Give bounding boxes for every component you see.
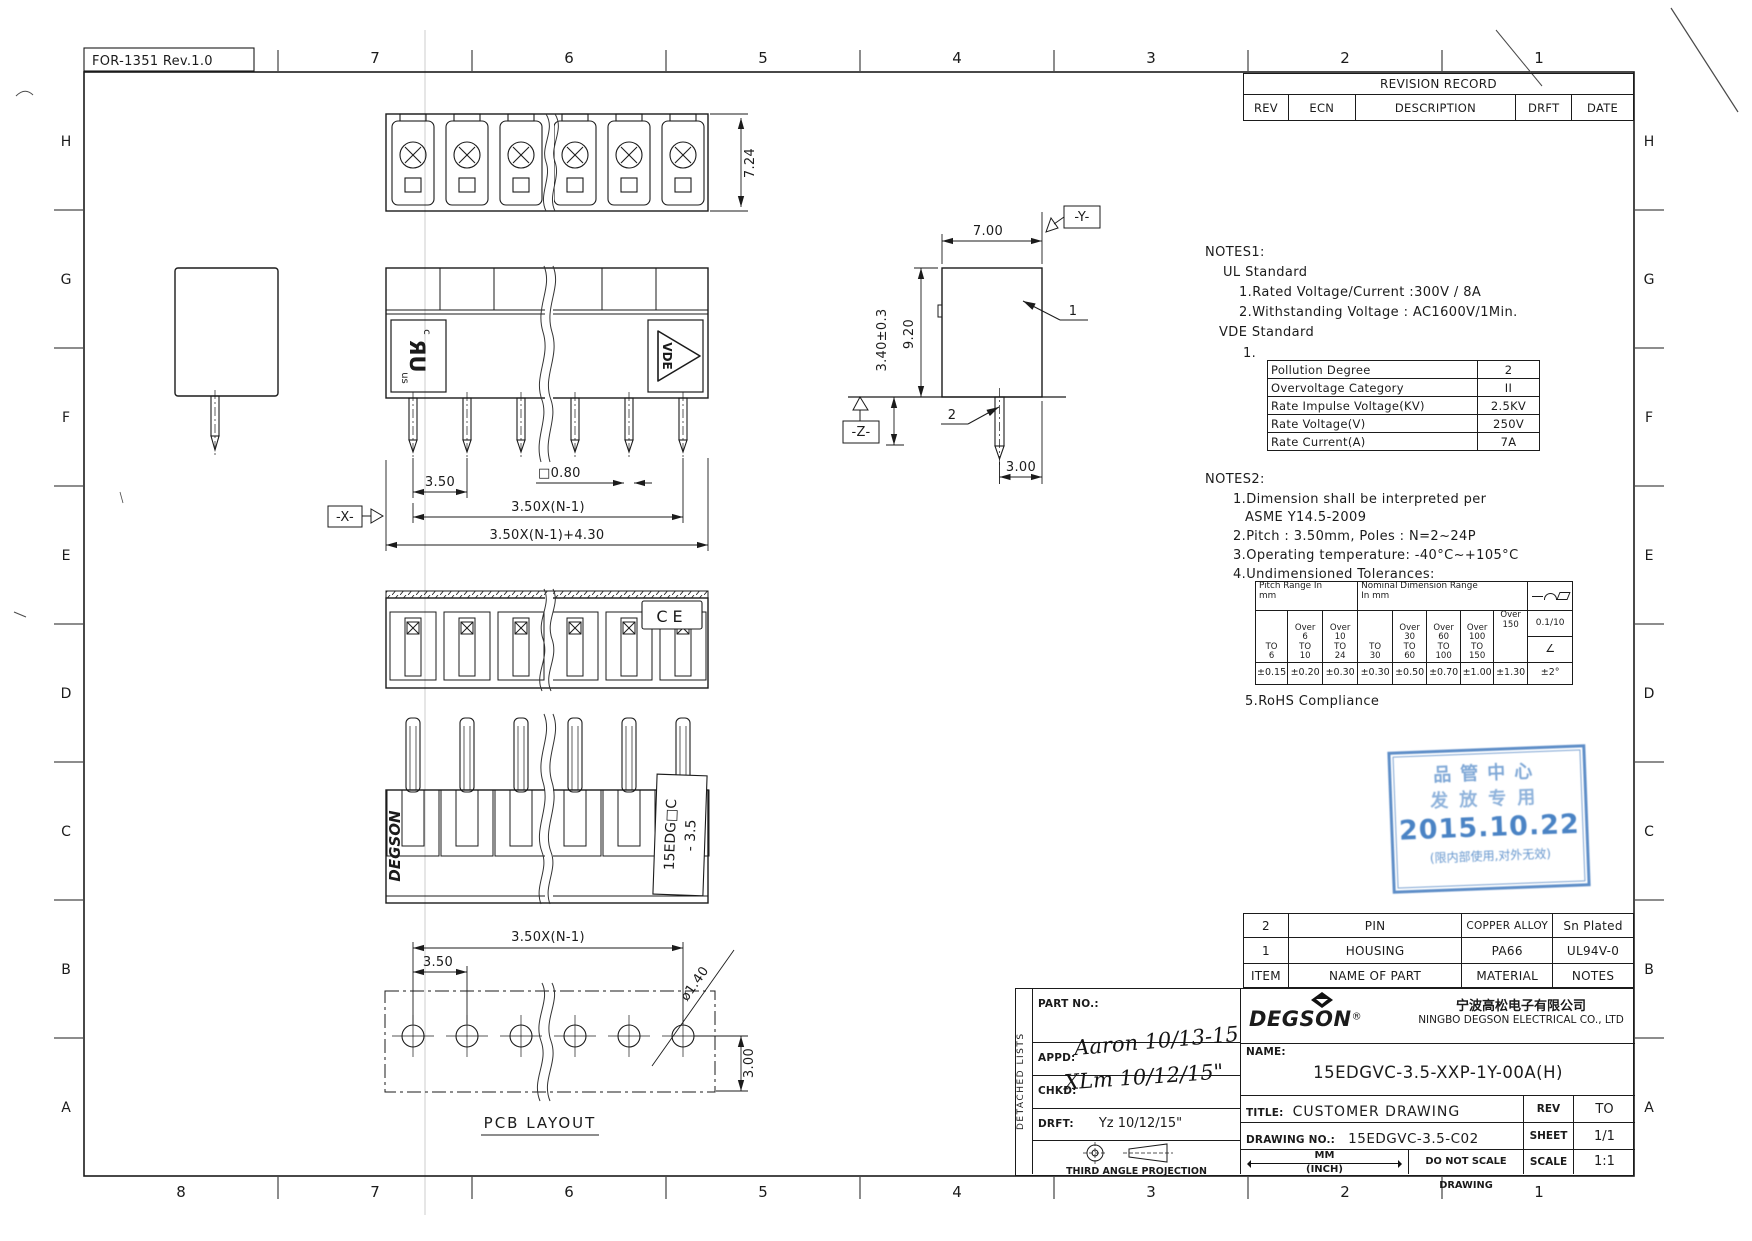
- nominal-range-col: TO 30: [1358, 611, 1393, 663]
- pcb-dim-pitch: 3.50: [423, 955, 453, 970]
- ce-view: [386, 589, 708, 691]
- brand-marking: DEGSON: [386, 810, 404, 882]
- dim-overall: 3.50X(N-1)+4.30: [489, 528, 604, 543]
- sheet-value: 1/1: [1574, 1123, 1635, 1150]
- drawing-no-value: 15EDGVC-3.5-C02: [1348, 1131, 1479, 1147]
- pcb-dim-span: 3.50X(N-1): [511, 930, 585, 945]
- svg-text:ЯU: ЯU: [405, 339, 429, 372]
- zone-number: 3: [1146, 49, 1156, 67]
- date-header: DATE: [1572, 95, 1634, 121]
- pcb-layout-caption: PCB LAYOUT: [484, 1114, 597, 1132]
- description-header: DESCRIPTION: [1355, 95, 1516, 121]
- zone-number: 6: [564, 49, 574, 67]
- zone-number: 5: [758, 49, 768, 67]
- end-view: [175, 268, 278, 458]
- drawing-sheet: FOR-1351 Rev.1.0 7 6 5 4 3 2 1 8 7 6 5 4…: [0, 0, 1752, 1241]
- note2-4: 4.Undimensioned Tolerances:: [1233, 567, 1435, 582]
- approval-stamp-inner: 品管中心 发放专用 2015.10.22 (限内部使用,对外无效): [1393, 749, 1586, 888]
- note2-1b: ASME Y14.5-2009: [1245, 510, 1366, 525]
- tolerance-value: ±1.30: [1494, 663, 1528, 685]
- vde-row-label: Rate Current(A): [1268, 433, 1478, 451]
- notes-header: NOTES: [1553, 964, 1634, 988]
- vde-row-value: 2: [1478, 361, 1540, 379]
- company-name-cn: 宁波高松电子有限公司: [1411, 995, 1631, 1014]
- approval-stamp: 品管中心 发放专用 2015.10.22 (限内部使用,对外无效): [1387, 744, 1590, 893]
- nominal-range-col: Over 150: [1494, 611, 1528, 663]
- top-view: [386, 114, 748, 211]
- third-angle-projection-icon: [1077, 1142, 1197, 1164]
- stamp-date: 2015.10.22: [1396, 808, 1583, 846]
- drawing-no-cell: DRAWING NO.: 15EDGVC-3.5-C02: [1241, 1123, 1524, 1150]
- flatness-tolerance: 0.1/10: [1528, 611, 1572, 637]
- pitch-range-col: TO 6: [1256, 611, 1288, 663]
- datum-z-label: -Z-: [852, 425, 871, 440]
- zone-letter: C: [61, 824, 71, 840]
- appd-label: APPD:: [1038, 1052, 1075, 1064]
- svg-text:15EDG□C: 15EDG□C: [662, 799, 680, 871]
- vde-row-value: 250V: [1478, 415, 1540, 433]
- vde-mark-box: [648, 320, 703, 392]
- units-inch: (INCH): [1241, 1164, 1408, 1175]
- part-material: COPPER ALLOY: [1462, 914, 1553, 938]
- pitch-range-header: Pitch Range In mm: [1256, 582, 1358, 611]
- zone-letter: F: [1645, 410, 1653, 426]
- tolerance-value: ±0.20: [1288, 663, 1323, 685]
- title-value: CUSTOMER DRAWING: [1293, 1104, 1461, 1120]
- note2-5: 5.RoHS Compliance: [1245, 694, 1379, 709]
- part-material: PA66: [1462, 938, 1553, 964]
- ul-recognized-icon: ЯU c us: [399, 329, 432, 384]
- item-header: ITEM: [1244, 964, 1289, 988]
- registered-mark: ®: [1352, 1012, 1362, 1023]
- vde-row-label: Rate Impulse Voltage(KV): [1268, 397, 1478, 415]
- name-of-part-header: NAME OF PART: [1288, 964, 1461, 988]
- name-cell: NAME: 15EDGVC-3.5-XXP-1Y-00A(H): [1241, 1044, 1635, 1096]
- scale-value: 1:1: [1574, 1150, 1635, 1174]
- pitch-range-col: Over 10 TO 24: [1323, 611, 1358, 663]
- zone-letter: H: [1644, 134, 1655, 150]
- detached-lists-label: DETACHED LISTS: [1016, 989, 1032, 1174]
- vde-row-label: Overvoltage Category: [1268, 379, 1478, 397]
- angle-tolerance: ±2°: [1528, 663, 1573, 685]
- dim-side-body: 9.20: [902, 319, 917, 349]
- nominal-range-col: Over 60 TO 100: [1427, 611, 1461, 663]
- zone-letter: A: [1644, 1100, 1654, 1116]
- drft-header: DRFT: [1516, 95, 1572, 121]
- drawing-no-label: DRAWING NO.:: [1246, 1134, 1335, 1146]
- zone-letter: A: [61, 1100, 71, 1116]
- dim-top-view-height: 7.24: [743, 148, 758, 178]
- zone-number: 4: [952, 49, 962, 67]
- dim-pitch: 3.50: [425, 475, 455, 490]
- zone-letter: D: [61, 686, 72, 702]
- part-notes: Sn Plated: [1553, 914, 1634, 938]
- title-block: DETACHED LISTS PART NO.: APPD: CHKD: DRF…: [1015, 988, 1634, 1176]
- pitch-range-col: Over 6 TO 10: [1288, 611, 1323, 663]
- zone-letter: B: [1644, 962, 1654, 978]
- drft-label: DRFT:: [1038, 1118, 1074, 1130]
- company-name-en: NINGBO DEGSON ELECTRICAL CO., LTD: [1411, 1014, 1631, 1026]
- tolerance-value: ±0.70: [1427, 663, 1461, 685]
- dim-pin-square: □0.80: [538, 466, 581, 481]
- drft-value: Yz 10/12/15": [1099, 1116, 1182, 1131]
- zone-letter: B: [61, 962, 71, 978]
- callout-housing: 1: [1069, 304, 1078, 319]
- zone-number: 2: [1340, 1183, 1350, 1201]
- brand-name: DEGSON: [1249, 1007, 1352, 1031]
- material-header: MATERIAL: [1462, 964, 1553, 988]
- vde-row-value: 7A: [1478, 433, 1540, 451]
- datum-x-label: -X-: [336, 510, 354, 525]
- pcb-layout-view: [385, 942, 748, 1135]
- projection-cell: THIRD ANGLE PROJECTION: [1033, 1141, 1241, 1174]
- company-cell: DEGSON® 宁波高松电子有限公司 NINGBO DEGSON ELECTRI…: [1241, 989, 1635, 1044]
- part-item: 1: [1244, 938, 1289, 964]
- form-number: FOR-1351 Rev.1.0: [92, 54, 213, 69]
- tolerance-value: ±0.30: [1323, 663, 1358, 685]
- datum-y-label: -Y-: [1074, 210, 1089, 225]
- vde-row-value: 2.5KV: [1478, 397, 1540, 415]
- callout-pin: 2: [948, 408, 957, 423]
- ul-standard-heading: UL Standard: [1223, 265, 1307, 280]
- vde-row-label: Rate Voltage(V): [1268, 415, 1478, 433]
- rev-label: REV: [1524, 1096, 1574, 1123]
- vde-ratings-table: Pollution Degree 2 Overvoltage Category …: [1267, 360, 1540, 451]
- zone-letter: G: [1644, 272, 1655, 288]
- notes2-heading: NOTES2:: [1205, 472, 1265, 487]
- zone-letter: D: [1644, 686, 1655, 702]
- dim-side-pin-edge: 3.00: [1006, 460, 1036, 475]
- units-cell: MM (INCH): [1241, 1150, 1409, 1174]
- dim-side-pin: 3.40±0.3: [875, 309, 890, 372]
- pcb-dim-edge: 3.00: [742, 1048, 757, 1078]
- svg-text:us: us: [399, 372, 410, 384]
- zone-number: 7: [370, 49, 380, 67]
- part-name-value: 15EDGVC-3.5-XXP-1Y-00A(H): [1246, 1063, 1630, 1082]
- stamp-line3: (限内部使用,对外无效): [1397, 843, 1584, 867]
- svg-text:- 3.5: - 3.5: [682, 819, 699, 851]
- parallelogram-icon: [1556, 592, 1570, 600]
- part-name: PIN: [1288, 914, 1461, 938]
- zone-letter: C: [1644, 824, 1654, 840]
- zone-letter: E: [1645, 548, 1654, 564]
- zone-number: 5: [758, 1183, 768, 1201]
- units-mm: MM: [1241, 1150, 1408, 1161]
- angle-icon: ∠: [1528, 637, 1572, 662]
- tolerance-value: ±0.50: [1393, 663, 1427, 685]
- sheet-label: SHEET: [1524, 1123, 1574, 1150]
- note2-1: 1.Dimension shall be interpreted per: [1233, 492, 1486, 507]
- ecn-header: ECN: [1288, 95, 1355, 121]
- revision-record-table: REVISION RECORD REV ECN DESCRIPTION DRFT…: [1243, 73, 1634, 121]
- model-marking: 15EDG□C - 3.5: [653, 774, 707, 896]
- ce-mark-icon: CE: [656, 607, 687, 626]
- svg-text:c: c: [421, 329, 432, 335]
- zone-letter: H: [61, 134, 72, 150]
- arc-icon: [1544, 593, 1557, 600]
- title-label: TITLE:: [1246, 1107, 1284, 1119]
- zone-number: 8: [176, 1183, 186, 1201]
- left-zone-letters: H G F E D C B A: [61, 134, 72, 1116]
- vde-standard-heading: VDE Standard: [1219, 325, 1314, 340]
- drawing-no-row: DRAWING NO.: 15EDGVC-3.5-C02 SHEET 1/1: [1241, 1123, 1635, 1150]
- detached-lists-strip: DETACHED LISTS: [1016, 989, 1033, 1174]
- vde-icon: VDE: [658, 331, 700, 381]
- right-zone-letters: H G F E D C B A: [1644, 134, 1655, 1116]
- dim-span: 3.50X(N-1): [511, 500, 585, 515]
- notes1-heading: NOTES1:: [1205, 245, 1265, 260]
- no-scale-note: DO NOT SCALE DRAWING: [1409, 1150, 1524, 1174]
- projection-label: THIRD ANGLE PROJECTION: [1033, 1166, 1240, 1177]
- part-item: 2: [1244, 914, 1289, 938]
- tolerance-value: ±1.00: [1461, 663, 1494, 685]
- straightness-line-icon: [1532, 596, 1543, 597]
- zone-letter: G: [61, 272, 72, 288]
- scale-label: SCALE: [1524, 1150, 1574, 1174]
- zone-letter: E: [62, 548, 71, 564]
- tolerance-value: ±0.15: [1256, 663, 1288, 685]
- revision-record-title: REVISION RECORD: [1244, 74, 1634, 95]
- zone-number: 2: [1340, 49, 1350, 67]
- vde-note-number: 1.: [1243, 346, 1256, 361]
- note2-2: 2.Pitch : 3.50mm, Poles : N=2~24P: [1233, 529, 1476, 544]
- nominal-range-header: Nominal Dimension Range In mm: [1358, 582, 1528, 611]
- degson-diamond-icon: [1311, 992, 1333, 1008]
- part-name: HOUSING: [1288, 938, 1461, 964]
- rev-header: REV: [1244, 95, 1289, 121]
- dim-side-width: 7.00: [973, 224, 1003, 239]
- tolerance-table: Pitch Range In mm Nominal Dimension Rang…: [1255, 581, 1573, 685]
- zone-letter: F: [62, 410, 70, 426]
- name-label: NAME:: [1246, 1046, 1630, 1058]
- part-no-label: PART NO.:: [1038, 998, 1099, 1010]
- ul-note-1: 1.Rated Voltage/Current :300V / 8A: [1239, 285, 1481, 300]
- zone-number: 7: [370, 1183, 380, 1201]
- tolerance-value: ±0.30: [1358, 663, 1393, 685]
- svg-text:VDE: VDE: [660, 342, 674, 369]
- note2-3: 3.Operating temperature: -40°C~+105°C: [1233, 548, 1519, 563]
- parts-table: 2 PIN COPPER ALLOY Sn Plated 1 HOUSING P…: [1243, 913, 1634, 988]
- drft-cell: DRFT: Yz 10/12/15": [1033, 1109, 1241, 1141]
- title-cell: TITLE: CUSTOMER DRAWING: [1241, 1096, 1524, 1123]
- part-notes: UL94V-0: [1553, 938, 1634, 964]
- units-row: MM (INCH) DO NOT SCALE DRAWING SCALE 1:1: [1241, 1150, 1635, 1174]
- zone-number: 1: [1534, 1183, 1544, 1201]
- vde-row-value: II: [1478, 379, 1540, 397]
- ul-note-2: 2.Withstanding Voltage : AC1600V/1Min.: [1239, 305, 1518, 320]
- zone-number: 1: [1534, 49, 1544, 67]
- zone-number: 6: [564, 1183, 574, 1201]
- nominal-range-col: Over 100 TO 150: [1461, 611, 1494, 663]
- rev-value: TO: [1574, 1096, 1635, 1123]
- vde-row-label: Pollution Degree: [1268, 361, 1478, 379]
- nominal-range-col: Over 30 TO 60: [1393, 611, 1427, 663]
- zone-number: 3: [1146, 1183, 1156, 1201]
- title-row: TITLE: CUSTOMER DRAWING REV TO: [1241, 1096, 1635, 1123]
- zone-number: 4: [952, 1183, 962, 1201]
- top-ruler: 7 6 5 4 3 2 1: [370, 49, 1544, 67]
